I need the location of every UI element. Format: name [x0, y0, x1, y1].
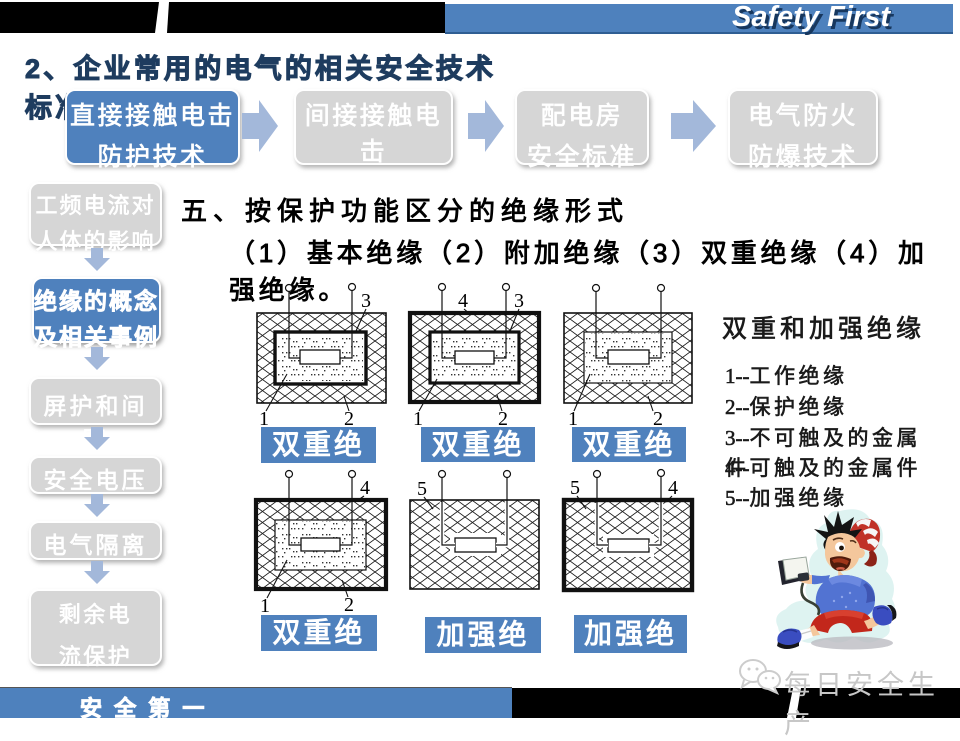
svg-text:5: 5: [570, 477, 580, 499]
svg-text:4: 4: [458, 290, 468, 312]
svg-text:4: 4: [668, 477, 678, 499]
svg-text:3: 3: [361, 290, 371, 312]
svg-text:5: 5: [417, 478, 427, 500]
svg-text:2: 2: [344, 594, 354, 616]
svg-text:3: 3: [514, 290, 524, 312]
svg-text:4: 4: [360, 477, 370, 499]
svg-text:1: 1: [260, 595, 270, 617]
